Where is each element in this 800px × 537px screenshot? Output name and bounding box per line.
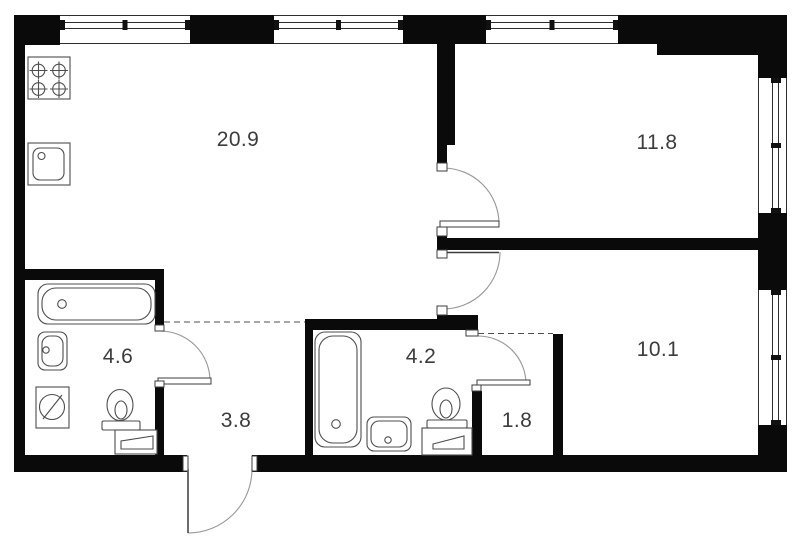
window xyxy=(60,15,190,44)
window-tick xyxy=(771,420,781,425)
door-room xyxy=(443,252,500,309)
toilet-2-fixture xyxy=(427,388,467,428)
door-wardrobe xyxy=(477,336,530,385)
window-tick xyxy=(550,20,555,30)
wall-segment xyxy=(758,55,787,78)
toilet-bowl xyxy=(107,390,133,421)
door-jamb xyxy=(437,163,447,171)
door-jamb xyxy=(437,227,447,236)
wall-segment xyxy=(657,15,787,55)
drain-icon xyxy=(38,153,45,160)
wall-segment xyxy=(14,15,25,472)
drain-icon xyxy=(332,420,341,429)
wall-segment xyxy=(403,15,486,44)
wall-segment xyxy=(472,391,482,455)
room-label-bathroom: 4.6 xyxy=(103,345,133,369)
window xyxy=(486,15,618,44)
toilet-cistern xyxy=(427,420,467,428)
door-leaf xyxy=(158,378,211,384)
wall-segment xyxy=(190,15,274,44)
door-arc xyxy=(160,331,210,381)
door-bathroom xyxy=(158,331,211,384)
toilet-fixture xyxy=(102,390,140,431)
washing-machine-fixture xyxy=(36,387,69,428)
wall-segment xyxy=(14,455,187,472)
drain-icon xyxy=(58,300,67,309)
floorplan-svg xyxy=(0,0,800,537)
washbasin-outline xyxy=(367,417,411,451)
window xyxy=(758,78,787,213)
door-leaf xyxy=(477,380,530,385)
door-arc xyxy=(478,336,526,384)
wall-segment xyxy=(155,280,164,325)
faucet-dot-icon xyxy=(385,437,391,443)
room-label-bathroom-2: 4.2 xyxy=(406,345,436,369)
door-arc xyxy=(443,168,499,224)
door-arc xyxy=(443,252,500,309)
window xyxy=(274,15,403,44)
wall-segment xyxy=(758,213,787,290)
room-label-bedroom: 11.8 xyxy=(637,131,678,155)
faucet-dot-icon xyxy=(43,347,49,353)
window-tick xyxy=(771,290,781,295)
wall-segment xyxy=(437,145,447,163)
room-label-kitchen-living: 20.9 xyxy=(217,128,259,152)
door-jamb xyxy=(472,385,481,391)
room-label-hallway: 3.8 xyxy=(221,409,251,433)
room-label-room: 10.1 xyxy=(637,338,679,362)
bathtub-outline xyxy=(315,332,361,447)
stove-fixture xyxy=(28,57,70,99)
window-tick xyxy=(123,20,128,30)
wall-segment xyxy=(305,330,313,455)
door-jamb xyxy=(252,456,257,471)
wall-segment xyxy=(14,15,60,45)
window-tick xyxy=(398,20,403,30)
window-tick xyxy=(771,355,781,360)
wall-segment xyxy=(305,319,478,330)
window-tick xyxy=(274,20,279,30)
washbasin-2-fixture xyxy=(367,417,411,451)
door-leaf xyxy=(440,221,499,227)
window-tick xyxy=(486,20,491,30)
cabinet-fixture xyxy=(115,430,157,454)
wall-segment xyxy=(618,15,657,44)
wall-segment xyxy=(437,44,455,145)
window-tick xyxy=(771,143,781,148)
door-jamb xyxy=(155,325,164,331)
door-jamb xyxy=(155,381,164,387)
window xyxy=(758,290,787,425)
kitchen-sink-fixture xyxy=(28,143,70,185)
window-tick xyxy=(613,20,618,30)
door-jamb xyxy=(437,306,447,315)
window-tick xyxy=(336,20,341,30)
bathtub-2-fixture xyxy=(315,332,361,447)
door-jamb xyxy=(437,250,447,258)
floor-plan: 20.911.810.14.64.23.81.8 xyxy=(0,0,800,537)
window-tick xyxy=(60,20,65,30)
door-jamb xyxy=(466,330,478,336)
washbasin-fixture xyxy=(38,332,67,370)
wall-segment xyxy=(437,238,758,250)
window-tick xyxy=(771,78,781,83)
door-jamb xyxy=(183,456,188,471)
door-bedroom xyxy=(440,168,499,227)
window-tick xyxy=(185,20,190,30)
wall-segment xyxy=(25,269,164,280)
bathtub-outline xyxy=(38,284,155,324)
wall-segment xyxy=(252,455,787,472)
door-entrance xyxy=(188,469,252,533)
toilet-cistern xyxy=(102,421,140,430)
toilet-bowl xyxy=(432,388,460,420)
bathtub-fixture xyxy=(38,284,155,324)
room-label-wardrobe: 1.8 xyxy=(502,409,532,433)
wall-segment xyxy=(553,334,563,455)
window-tick xyxy=(771,208,781,213)
door-arc xyxy=(188,469,252,533)
cabinet-2-fixture xyxy=(422,428,472,455)
